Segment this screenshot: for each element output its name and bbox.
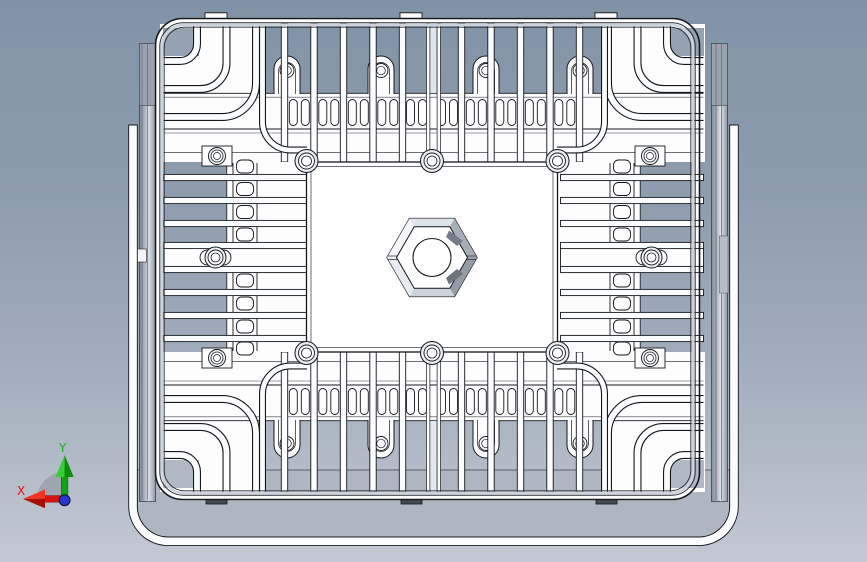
z-axis-dot[interactable] <box>59 495 70 506</box>
x-axis-label: X <box>17 484 25 498</box>
center-strip <box>430 24 437 93</box>
model-canvas[interactable]: X Y <box>0 0 867 562</box>
center-strip <box>430 421 437 492</box>
right-mid-band <box>561 248 704 267</box>
y-axis-label: Y <box>58 441 67 455</box>
left-fin-field <box>164 160 307 355</box>
center-plate[interactable] <box>295 150 569 365</box>
orientation-triad[interactable]: X Y <box>17 441 74 508</box>
top-fin-field <box>160 23 705 162</box>
bottom-fin-field <box>160 352 705 493</box>
hex-center-hole <box>413 239 451 277</box>
right-fin-field <box>558 160 704 355</box>
cad-viewport[interactable]: X Y <box>0 0 867 562</box>
bracket-arm-notch <box>720 236 729 293</box>
bracket-pivot-tab <box>138 249 147 262</box>
left-mid-band <box>164 248 307 267</box>
